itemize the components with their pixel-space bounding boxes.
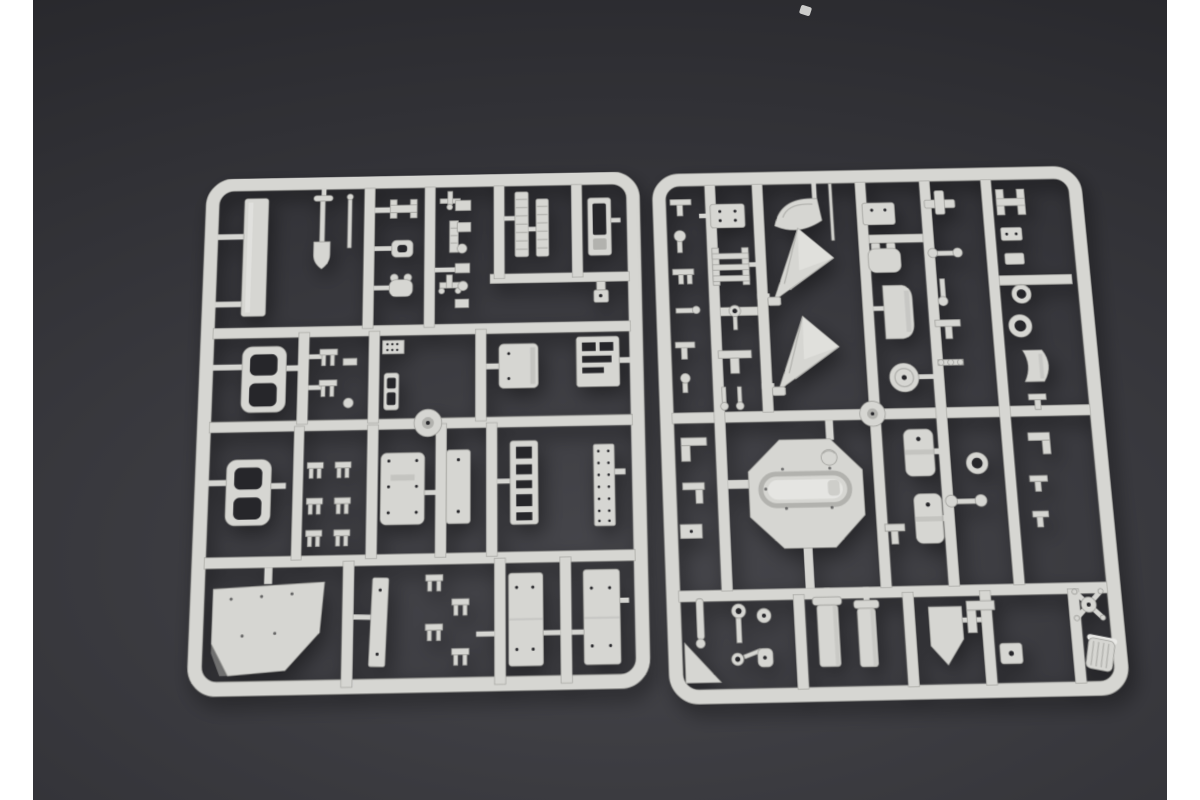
- fan-plate-part: [772, 181, 822, 230]
- block-part: [680, 524, 702, 538]
- slotted-plate-part: [576, 336, 631, 387]
- ribbed-strip-part: [504, 192, 528, 257]
- window-frame-part: [588, 198, 622, 256]
- photo-margin-right: [1167, 0, 1200, 800]
- stud-block-part: [382, 340, 404, 354]
- sprue-left-drawing: [185, 172, 652, 698]
- cup-fitting-part: [1011, 284, 1032, 303]
- ribbed-cylinder-part: [1084, 634, 1118, 673]
- track-frame-part: [207, 459, 287, 526]
- photo-margin-left: [0, 0, 33, 800]
- disc-wheel-part: [889, 363, 936, 393]
- pin-ball-part: [937, 279, 949, 306]
- bracket-part: [681, 438, 707, 462]
- eyelet-part: [729, 305, 742, 330]
- sprue-left: [185, 172, 652, 698]
- ladder-bracket-part: [712, 247, 758, 285]
- dumbbell-part: [928, 248, 963, 258]
- t-clip-parts: [1029, 475, 1051, 527]
- dust-speck: [799, 5, 812, 17]
- corner-wedge-part: [685, 642, 722, 683]
- curved-shell-part: [1022, 350, 1049, 382]
- drum-part: [903, 429, 942, 477]
- connector-part: [594, 281, 609, 302]
- turret-base-part: [725, 420, 869, 590]
- thin-rod-part: [828, 184, 834, 240]
- h-bracket-part: [995, 189, 1026, 215]
- block-parts: [1000, 227, 1024, 264]
- tall-plate-part: [571, 569, 630, 665]
- sprue-right: [651, 164, 1145, 708]
- donut-ring-part: [1008, 314, 1033, 337]
- plank-part: [215, 198, 269, 317]
- sprue-right-drawing: [651, 164, 1145, 708]
- small-clip-column-parts: [670, 199, 704, 393]
- angle-part: [683, 483, 706, 504]
- dotted-rect-part: [862, 203, 896, 226]
- clip-part: [718, 350, 752, 373]
- seat-plate-part: [872, 285, 915, 339]
- donut-ring-part: [965, 452, 988, 474]
- angle-part: [1028, 432, 1051, 454]
- ring-clip-part: [374, 240, 413, 257]
- ladder-plate-part: [497, 440, 538, 524]
- mini-frame-part: [384, 373, 399, 410]
- flanged-cylinder-part: [853, 587, 883, 667]
- pronged-clip-parts: [308, 349, 357, 409]
- pin-parts: [720, 387, 744, 411]
- dotted-plate-part: [380, 452, 437, 525]
- ribbed-strip-part: [528, 199, 549, 257]
- pronged-clip-parts: [425, 574, 494, 666]
- anchor-clip-part: [439, 275, 461, 294]
- rod-part: [346, 194, 353, 248]
- cat-head-part: [867, 243, 901, 273]
- mud-flap-part: [210, 567, 325, 677]
- knob-parts: [756, 608, 774, 667]
- photo-surface: [33, 0, 1167, 800]
- tall-plate-part: [508, 572, 560, 666]
- pronged-clip-parts: [305, 462, 351, 547]
- triple-dot-part: [938, 359, 964, 365]
- track-frame-part: [211, 346, 300, 413]
- axle-part: [945, 494, 987, 507]
- holed-square-part: [999, 643, 1023, 664]
- lower-strip-part: [351, 577, 389, 666]
- blob-clip-part: [374, 274, 413, 297]
- h-clip-part: [375, 199, 417, 218]
- studded-strip-part: [593, 444, 626, 526]
- vertical-strip-part: [446, 450, 470, 524]
- photo-stage: [0, 0, 1200, 800]
- flanged-cylinder-part: [812, 588, 846, 667]
- stick-bracket-part: [694, 599, 705, 649]
- shovel-part: [312, 189, 333, 269]
- box-part: [486, 343, 538, 388]
